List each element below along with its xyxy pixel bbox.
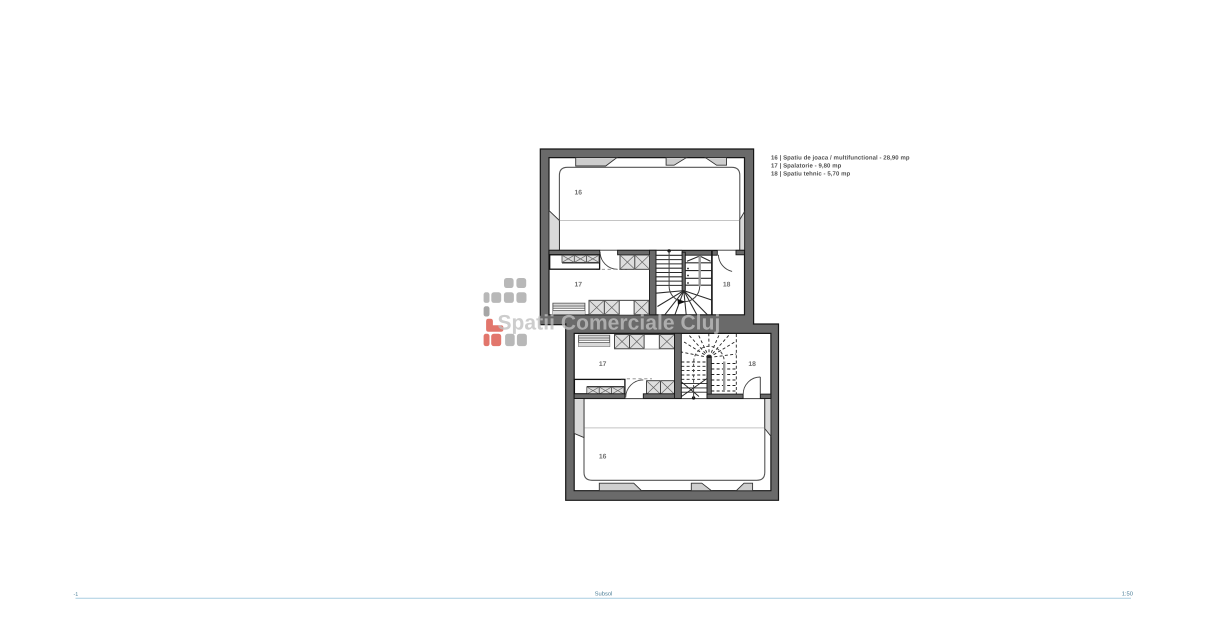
svg-text:18: 18: [723, 282, 731, 289]
svg-text:1:50: 1:50: [1122, 591, 1133, 598]
svg-text:17 | Spalatorie - 9,80 mp: 17 | Spalatorie - 9,80 mp: [771, 162, 842, 169]
svg-text:17: 17: [575, 282, 583, 289]
svg-text:-1: -1: [74, 592, 79, 598]
svg-text:Subsol: Subsol: [595, 591, 613, 598]
svg-text:Spatii Comerciale Cluj: Spatii Comerciale Cluj: [498, 311, 721, 334]
svg-text:16: 16: [599, 454, 607, 461]
svg-text:17: 17: [599, 361, 607, 368]
svg-text:18 | Spatiu tehnic - 5,70 mp: 18 | Spatiu tehnic - 5,70 mp: [771, 170, 851, 177]
svg-text:16 | Spatiu de joaca / multifu: 16 | Spatiu de joaca / multifunctional -…: [771, 155, 910, 162]
svg-text:16: 16: [575, 189, 583, 196]
svg-text:18: 18: [748, 361, 756, 368]
